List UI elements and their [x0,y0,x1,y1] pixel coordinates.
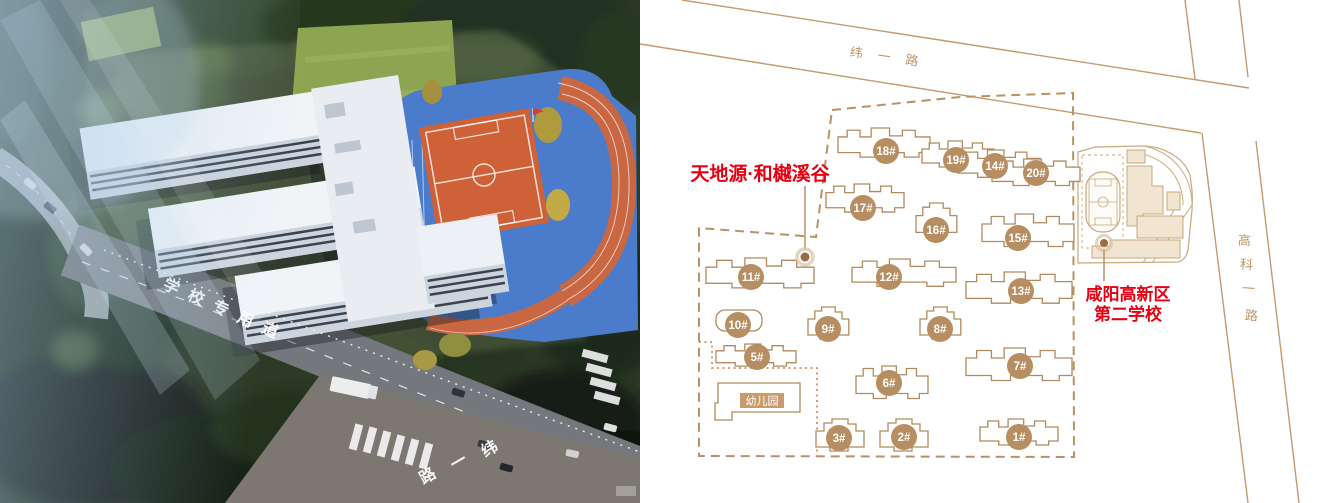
brochure-page: 学校专用道 纬 一 路 [0,0,1320,503]
svg-text:路: 路 [1244,308,1258,324]
site-plan-svg: 纬一路 高 科 一 路 [640,0,1320,503]
yellow-tree [546,189,570,221]
badge-15: 15# [1005,225,1031,251]
school-name-line2: 第二学校 [1094,304,1163,324]
svg-text:5#: 5# [751,352,764,364]
svg-text:14#: 14# [985,161,1005,173]
svg-text:16#: 16# [926,225,946,237]
svg-text:19#: 19# [946,155,966,167]
svg-text:20#: 20# [1026,168,1046,180]
badge-1: 1# [1006,424,1032,450]
kindergarten-label: 幼儿园 [746,395,779,408]
svg-text:9#: 9# [822,324,835,336]
badge-14: 14# [982,153,1008,179]
project-marker-dot [801,253,810,262]
badge-17: 17# [850,195,876,221]
badge-7: 7# [1007,353,1033,379]
svg-text:3#: 3# [833,433,846,445]
svg-text:2#: 2# [898,432,911,444]
badge-5: 5# [744,344,770,370]
badge-10: 10# [725,312,751,338]
badge-8: 8# [927,316,953,342]
project-name-label: 天地源·和樾溪谷 [690,162,830,185]
badge-16: 16# [923,217,949,243]
badge-11: 11# [738,264,764,290]
badge-19: 19# [943,147,969,173]
svg-text:8#: 8# [934,324,947,336]
badge-12: 12# [876,264,902,290]
badge-20: 20# [1023,160,1049,186]
svg-text:17#: 17# [853,203,873,215]
yellow-tree [439,333,471,357]
yellow-tree [422,80,442,104]
lens-glare [0,0,300,503]
watermark [616,486,636,496]
svg-text:15#: 15# [1008,233,1028,245]
svg-text:13#: 13# [1011,286,1031,298]
badge-2: 2# [891,424,917,450]
aerial-rendering-photo: 学校专用道 纬 一 路 [0,0,640,503]
badge-6: 6# [876,370,902,396]
badge-3: 3# [826,425,852,451]
svg-text:科: 科 [1239,257,1253,273]
svg-text:10#: 10# [728,320,748,332]
building-slab-d [416,214,509,304]
site-plan-map: 纬一路 高 科 一 路 [640,0,1320,503]
yellow-tree [413,350,437,370]
svg-text:6#: 6# [883,378,896,390]
kindergarten-label-box: 幼儿园 [740,393,784,408]
svg-text:7#: 7# [1014,361,1027,373]
badge-13: 13# [1008,278,1034,304]
badge-9: 9# [815,316,841,342]
svg-text:一: 一 [1241,281,1255,297]
aerial-rendering-svg: 学校专用道 纬 一 路 [0,0,640,503]
badge-18: 18# [873,138,899,164]
svg-text:11#: 11# [742,272,761,284]
school-marker-dot [1100,239,1108,247]
school-name-line1: 咸阳高新区 [1086,284,1171,304]
svg-text:1#: 1# [1013,432,1026,444]
svg-text:18#: 18# [876,146,896,158]
svg-text:12#: 12# [879,272,899,284]
svg-text:高: 高 [1237,233,1251,249]
